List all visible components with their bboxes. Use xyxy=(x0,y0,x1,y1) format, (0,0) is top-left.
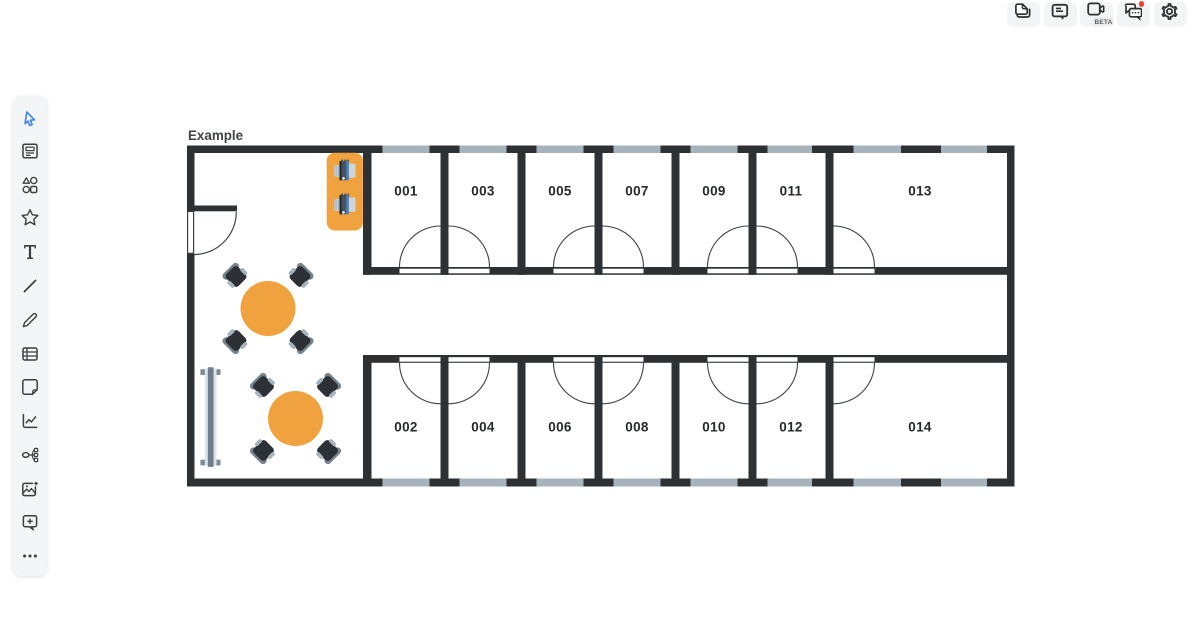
svg-text:007: 007 xyxy=(625,184,648,199)
svg-text:009: 009 xyxy=(702,184,725,199)
svg-text:011: 011 xyxy=(780,184,803,199)
svg-text:013: 013 xyxy=(908,184,932,199)
svg-text:014: 014 xyxy=(908,420,932,435)
svg-text:Example: Example xyxy=(188,128,243,143)
svg-text:010: 010 xyxy=(702,420,725,435)
svg-text:008: 008 xyxy=(625,420,649,435)
svg-text:006: 006 xyxy=(548,420,572,435)
svg-text:004: 004 xyxy=(471,420,495,435)
svg-text:BETA: BETA xyxy=(1094,19,1112,26)
svg-text:005: 005 xyxy=(548,184,572,199)
svg-text:012: 012 xyxy=(779,420,802,435)
svg-text:002: 002 xyxy=(394,420,417,435)
svg-text:001: 001 xyxy=(394,184,418,199)
svg-text:003: 003 xyxy=(471,184,495,199)
